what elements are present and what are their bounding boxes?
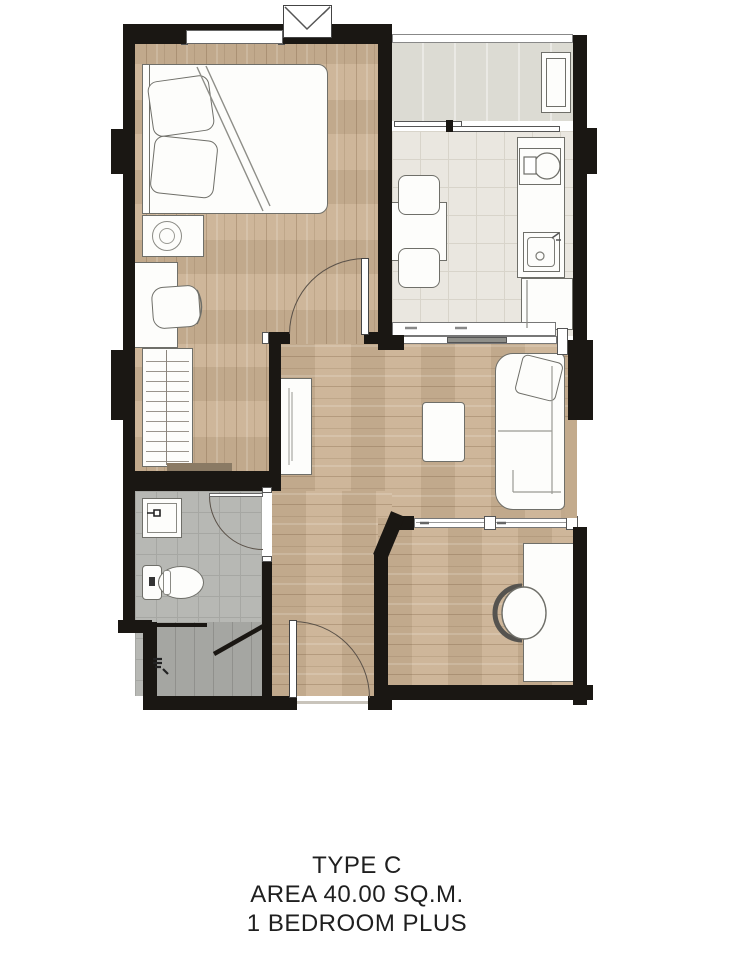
floorplan-page: { "caption": { "line1": "TYPE C", "line2… [0, 0, 756, 960]
tv-lines [289, 388, 292, 465]
sketch-overlay [0, 0, 756, 960]
floor-plan [0, 0, 756, 960]
toilet-flush [149, 577, 155, 586]
sink-faucet [552, 233, 561, 240]
vanity-faucet [147, 510, 160, 516]
duvet-fold-line [197, 66, 270, 211]
sofa-seam-lines [498, 366, 561, 494]
cooktop-control [524, 157, 536, 174]
burner-circle [534, 153, 560, 179]
chair-backrest-line [197, 290, 202, 324]
unit-type-label: TYPE C [37, 851, 677, 880]
shower-head-icon [153, 659, 168, 674]
sink-drain [536, 252, 544, 260]
shower-glass-diagonal [214, 624, 267, 654]
ac-symbol-lines [285, 7, 330, 29]
plan-caption: TYPE C AREA 40.00 SQ.M. 1 BEDROOM PLUS [37, 851, 677, 938]
unit-area-label: AREA 40.00 SQ.M. [37, 880, 677, 909]
wall-study-diagonal [380, 514, 398, 557]
unit-layout-label: 1 BEDROOM PLUS [37, 909, 677, 938]
study-chair-seat [502, 587, 546, 639]
